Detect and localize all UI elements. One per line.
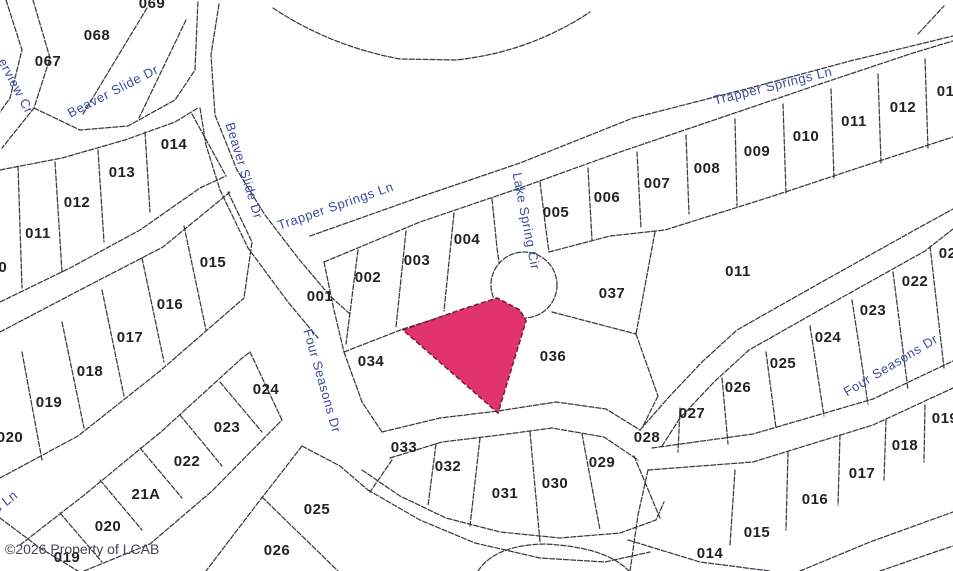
lot-label[interactable]: 004 <box>454 231 481 248</box>
lot-label[interactable]: 003 <box>404 252 431 269</box>
lot-label[interactable]: 030 <box>542 475 569 492</box>
lot-label[interactable]: 017 <box>117 329 144 346</box>
lot-label[interactable]: 011 <box>25 225 51 242</box>
lot-label[interactable]: 006 <box>594 189 621 206</box>
lot-label[interactable]: 018 <box>77 363 104 380</box>
copyright-text: ©2026 Property of LCAB <box>5 541 159 557</box>
lot-label[interactable]: 011 <box>841 113 867 130</box>
lot-label[interactable]: 016 <box>802 491 829 508</box>
lot-label[interactable]: 023 <box>214 419 241 436</box>
lot-label[interactable]: 024 <box>253 381 280 398</box>
lot-label[interactable]: 034 <box>358 353 385 370</box>
lot-label[interactable]: 013 <box>109 164 136 181</box>
lot-label[interactable]: 036 <box>540 348 567 365</box>
lot-label[interactable]: 015 <box>744 524 771 541</box>
lot-label[interactable]: 068 <box>84 27 111 44</box>
lot-label[interactable]: 015 <box>200 254 227 271</box>
lot-label[interactable]: 007 <box>644 175 671 192</box>
lot-label[interactable]: 031 <box>492 485 519 502</box>
lot-label[interactable]: 022 <box>902 273 929 290</box>
lot-label[interactable]: 022 <box>174 453 201 470</box>
lot-label[interactable]: 010 <box>0 259 7 276</box>
lot-label[interactable]: 033 <box>391 439 418 456</box>
lot-label[interactable]: 024 <box>815 329 842 346</box>
lot-label[interactable]: 037 <box>599 285 626 302</box>
lot-label[interactable]: 032 <box>435 458 462 475</box>
lot-label[interactable]: 008 <box>694 160 721 177</box>
parcel-map: 0670680690140130120110100150160170180190… <box>0 0 953 571</box>
lot-label[interactable]: 026 <box>725 379 752 396</box>
lot-label[interactable]: 010 <box>793 128 820 145</box>
lot-label[interactable]: 067 <box>35 53 62 70</box>
lot-label[interactable]: 013 <box>937 83 953 100</box>
lot-label[interactable]: 020 <box>95 518 122 535</box>
lot-label[interactable]: 005 <box>543 204 570 221</box>
lot-label[interactable]: 009 <box>744 143 771 160</box>
lot-label[interactable]: 016 <box>157 296 184 313</box>
lot-label[interactable]: 019 <box>36 394 63 411</box>
lot-label[interactable]: 019 <box>932 410 953 427</box>
lot-label[interactable]: 023 <box>860 302 887 319</box>
parcel-map-viewport: 0670680690140130120110100150160170180190… <box>0 0 953 571</box>
lot-label[interactable]: 012 <box>64 194 91 211</box>
lot-label[interactable]: 021 <box>939 245 953 262</box>
lot-label[interactable]: 028 <box>634 429 661 446</box>
lot-label[interactable]: 21A <box>131 486 160 503</box>
lot-label[interactable]: 012 <box>890 99 917 116</box>
lot-label[interactable]: 029 <box>589 454 616 471</box>
lot-label[interactable]: 020 <box>0 429 23 446</box>
lot-label[interactable]: 001 <box>307 288 334 305</box>
lot-label[interactable]: 026 <box>264 542 291 559</box>
lot-label[interactable]: 014 <box>697 545 724 562</box>
lot-label[interactable]: 002 <box>355 269 382 286</box>
lot-label[interactable]: 025 <box>304 501 331 518</box>
lot-label[interactable]: 069 <box>139 0 166 12</box>
lot-label[interactable]: 018 <box>892 437 919 454</box>
lot-label[interactable]: 011 <box>725 263 751 280</box>
lot-label[interactable]: 025 <box>770 355 797 372</box>
lot-label[interactable]: 014 <box>161 136 188 153</box>
lot-label[interactable]: 027 <box>679 405 706 422</box>
lot-label[interactable]: 017 <box>849 465 876 482</box>
